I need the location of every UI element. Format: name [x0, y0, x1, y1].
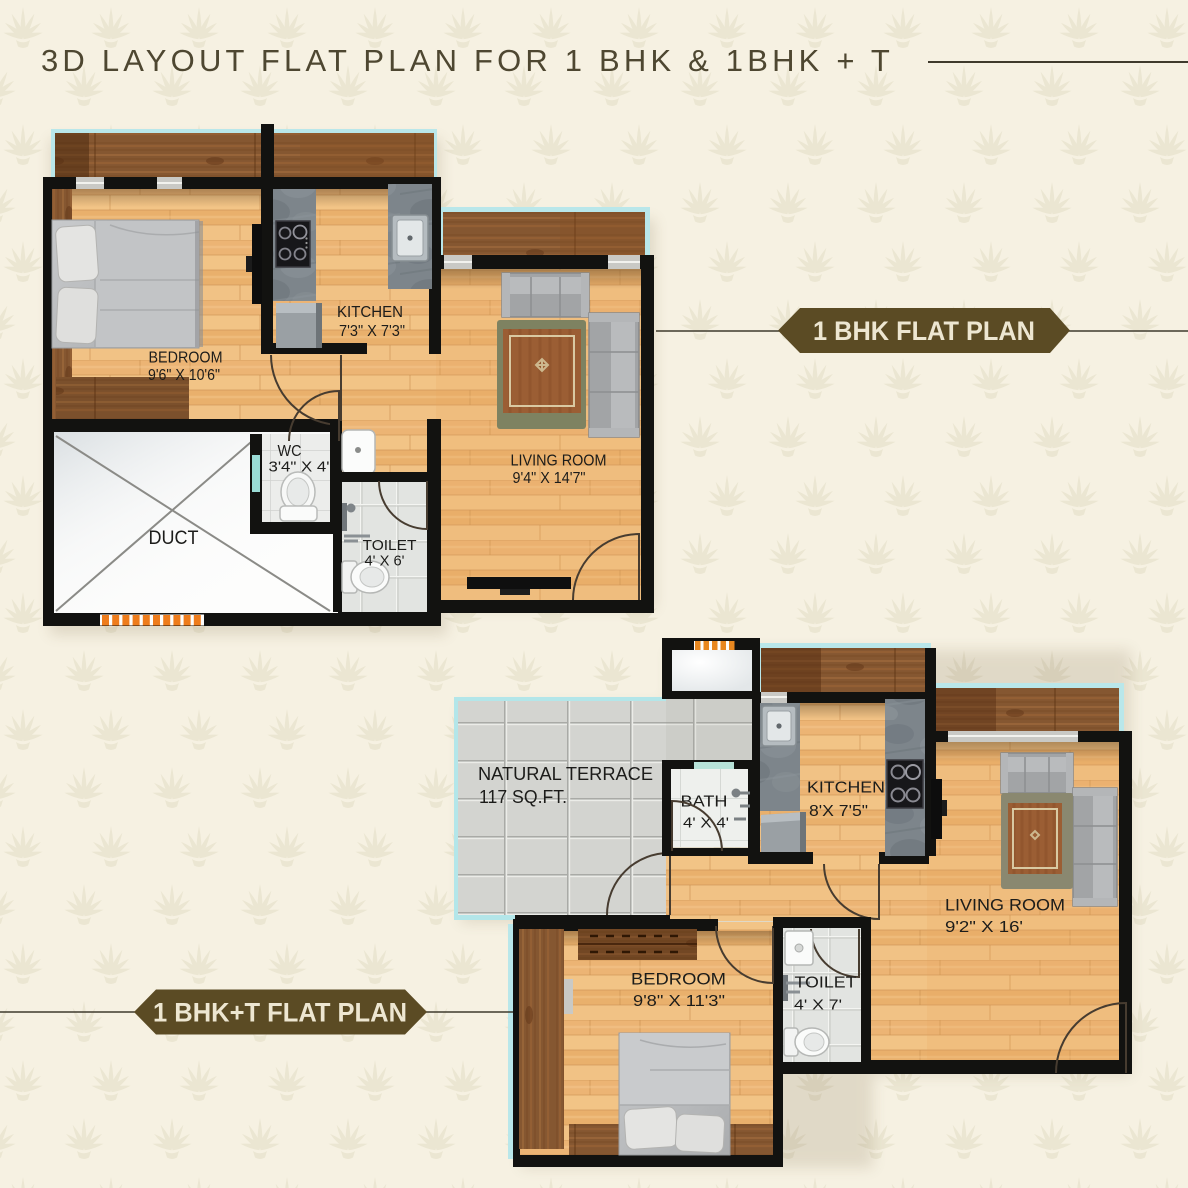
svg-text:KITCHEN: KITCHEN [807, 780, 885, 797]
svg-text:LIVING ROOM: LIVING ROOM [945, 897, 1065, 915]
svg-text:4' X 4': 4' X 4' [683, 815, 729, 832]
svg-text:4' X 7': 4' X 7' [794, 997, 842, 1014]
svg-text:BEDROOM: BEDROOM [631, 971, 726, 989]
svg-text:TOILET: TOILET [795, 975, 858, 992]
svg-text:WC: WC [278, 443, 302, 460]
svg-text:7'3" X 7'3": 7'3" X 7'3" [339, 323, 405, 340]
svg-text:DUCT: DUCT [149, 528, 199, 549]
svg-text:3D LAYOUT FLAT PLAN FOR 1 BHK: 3D LAYOUT FLAT PLAN FOR 1 BHK & 1BHK + T [41, 43, 894, 78]
svg-text:9'6" X 10'6": 9'6" X 10'6" [148, 367, 220, 384]
svg-text:117 SQ.FT.: 117 SQ.FT. [479, 787, 567, 807]
svg-text:LIVING ROOM: LIVING ROOM [511, 453, 607, 470]
svg-text:1 BHK+T FLAT PLAN: 1 BHK+T FLAT PLAN [153, 998, 407, 1028]
svg-text:1 BHK FLAT PLAN: 1 BHK FLAT PLAN [813, 316, 1035, 346]
svg-text:9'8" X 11'3": 9'8" X 11'3" [633, 993, 725, 1010]
svg-text:3'4" X 4': 3'4" X 4' [269, 459, 330, 476]
svg-text:9'2" X 16': 9'2" X 16' [945, 919, 1023, 936]
svg-text:NATURAL TERRACE: NATURAL TERRACE [478, 764, 653, 784]
svg-text:TOILET: TOILET [363, 537, 417, 554]
svg-text:4' X 6': 4' X 6' [365, 553, 405, 570]
svg-text:8'X 7'5": 8'X 7'5" [809, 803, 868, 820]
svg-text:BEDROOM: BEDROOM [149, 350, 223, 367]
svg-text:KITCHEN: KITCHEN [337, 304, 403, 321]
svg-text:BATH: BATH [681, 794, 728, 811]
svg-text:9'4" X 14'7": 9'4" X 14'7" [513, 470, 586, 487]
